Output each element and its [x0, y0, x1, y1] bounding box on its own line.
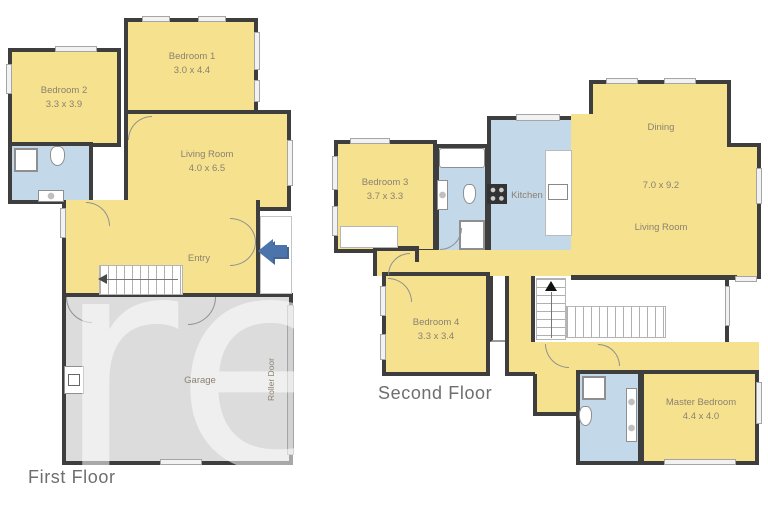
- shower-icon: [582, 376, 606, 400]
- shower-icon: [459, 220, 485, 250]
- window: [756, 168, 762, 204]
- room-dims: 3.0 x 4.4: [169, 64, 215, 78]
- stove-icon: [487, 184, 507, 204]
- wall-segment: [505, 276, 509, 376]
- wall-segment: [415, 248, 419, 262]
- vanity-icon: [437, 180, 448, 210]
- window: [6, 64, 12, 94]
- floor-plan-canvas: re Bedroom 2 3.3 x 3.9 Bedroom 1 3.0 x 4…: [0, 0, 768, 512]
- window: [60, 208, 66, 238]
- window: [332, 156, 338, 190]
- window: [664, 459, 736, 465]
- room-garage: [62, 293, 293, 465]
- sink-icon: [548, 184, 568, 200]
- wardrobe: [340, 226, 398, 248]
- room-label-bedroom-3: Bedroom 3 3.7 x 3.3: [362, 176, 408, 204]
- window: [664, 78, 696, 84]
- room-name: Living Room: [635, 221, 688, 235]
- window: [160, 459, 202, 465]
- wall-segment: [727, 80, 731, 147]
- room-dims: 3.7 x 3.3: [362, 190, 408, 204]
- window: [735, 276, 757, 282]
- first-floor-title: First Floor: [28, 467, 116, 488]
- window: [142, 16, 170, 22]
- window: [198, 16, 226, 22]
- window: [287, 140, 293, 186]
- stairs-direction-line: [106, 279, 178, 280]
- room-name: Bedroom 4: [413, 316, 459, 330]
- window: [380, 334, 386, 360]
- room-label-dining: Dining: [648, 121, 675, 135]
- window: [725, 286, 730, 326]
- stairs-direction-line: [551, 292, 552, 338]
- room-name: Living Room: [181, 148, 234, 162]
- wall-segment: [571, 275, 737, 280]
- stairs-second-floor-horizontal-run: [566, 306, 666, 338]
- room-label-bedroom-2: Bedroom 2 3.3 x 3.9: [41, 84, 87, 112]
- toilet-icon: [50, 146, 65, 166]
- room-label-entry: Entry: [188, 252, 210, 266]
- room-label-bedroom-1: Bedroom 1 3.0 x 4.4: [169, 50, 215, 78]
- window: [756, 382, 762, 424]
- room-living-extension: [727, 143, 761, 279]
- stairs-direction-arrow-icon: [98, 274, 107, 284]
- window: [55, 46, 97, 52]
- room-name: Bedroom 3: [362, 176, 408, 190]
- room-dims: 4.0 x 6.5: [181, 162, 234, 176]
- entry-direction-arrow-icon: [258, 238, 292, 266]
- room-living-dining: [571, 114, 731, 279]
- room-name: Master Bedroom: [666, 396, 736, 410]
- roller-door-panel: [287, 305, 294, 455]
- double-vanity-icon: [626, 388, 637, 442]
- room-name: Bedroom 1: [169, 50, 215, 64]
- bathtub-icon: [439, 148, 485, 168]
- second-floor-title: Second Floor: [378, 383, 492, 404]
- room-dims: 7.0 x 9.2: [643, 179, 679, 193]
- room-name: Garage: [184, 374, 216, 388]
- wall-segment: [505, 372, 535, 376]
- room-label-living-room-ff: Living Room 4.0 x 6.5: [181, 148, 234, 176]
- room-label-living-room-sf: Living Room: [635, 221, 688, 235]
- arrow-shaft: [272, 245, 287, 257]
- room-dims: 4.4 x 4.0: [666, 410, 736, 424]
- room-label-living-dining-dims: 7.0 x 9.2: [643, 179, 679, 193]
- room-dims: 3.3 x 3.9: [41, 98, 87, 112]
- window: [332, 206, 338, 236]
- window: [380, 286, 386, 316]
- stairs-first-floor: [99, 265, 183, 295]
- room-name: Entry: [188, 252, 210, 266]
- room-name: Dining: [648, 121, 675, 135]
- roller-door-label: Roller Door: [266, 358, 276, 401]
- vanity-icon: [38, 190, 64, 202]
- arrow-head: [258, 239, 273, 263]
- window: [350, 138, 390, 144]
- window: [516, 114, 560, 121]
- room-dims: 3.3 x 3.4: [413, 330, 459, 344]
- wall-segment: [373, 250, 377, 276]
- hallway-pocket: [533, 374, 578, 416]
- stairs-up-arrow-icon: [545, 281, 557, 291]
- window: [254, 32, 260, 70]
- room-label-kitchen: Kitchen: [511, 189, 543, 203]
- toilet-icon: [463, 184, 476, 204]
- wall-segment: [531, 276, 535, 342]
- room-name: Kitchen: [511, 189, 543, 203]
- room-name: Bedroom 2: [41, 84, 87, 98]
- toilet-icon: [579, 406, 592, 426]
- room-label-master-bedroom: Master Bedroom 4.4 x 4.0: [666, 396, 736, 424]
- shower-icon: [14, 148, 38, 172]
- window: [606, 78, 638, 84]
- appliance-icon: [68, 374, 80, 386]
- room-label-bedroom-4: Bedroom 4 3.3 x 3.4: [413, 316, 459, 344]
- window: [254, 80, 260, 102]
- room-label-garage: Garage: [184, 374, 216, 388]
